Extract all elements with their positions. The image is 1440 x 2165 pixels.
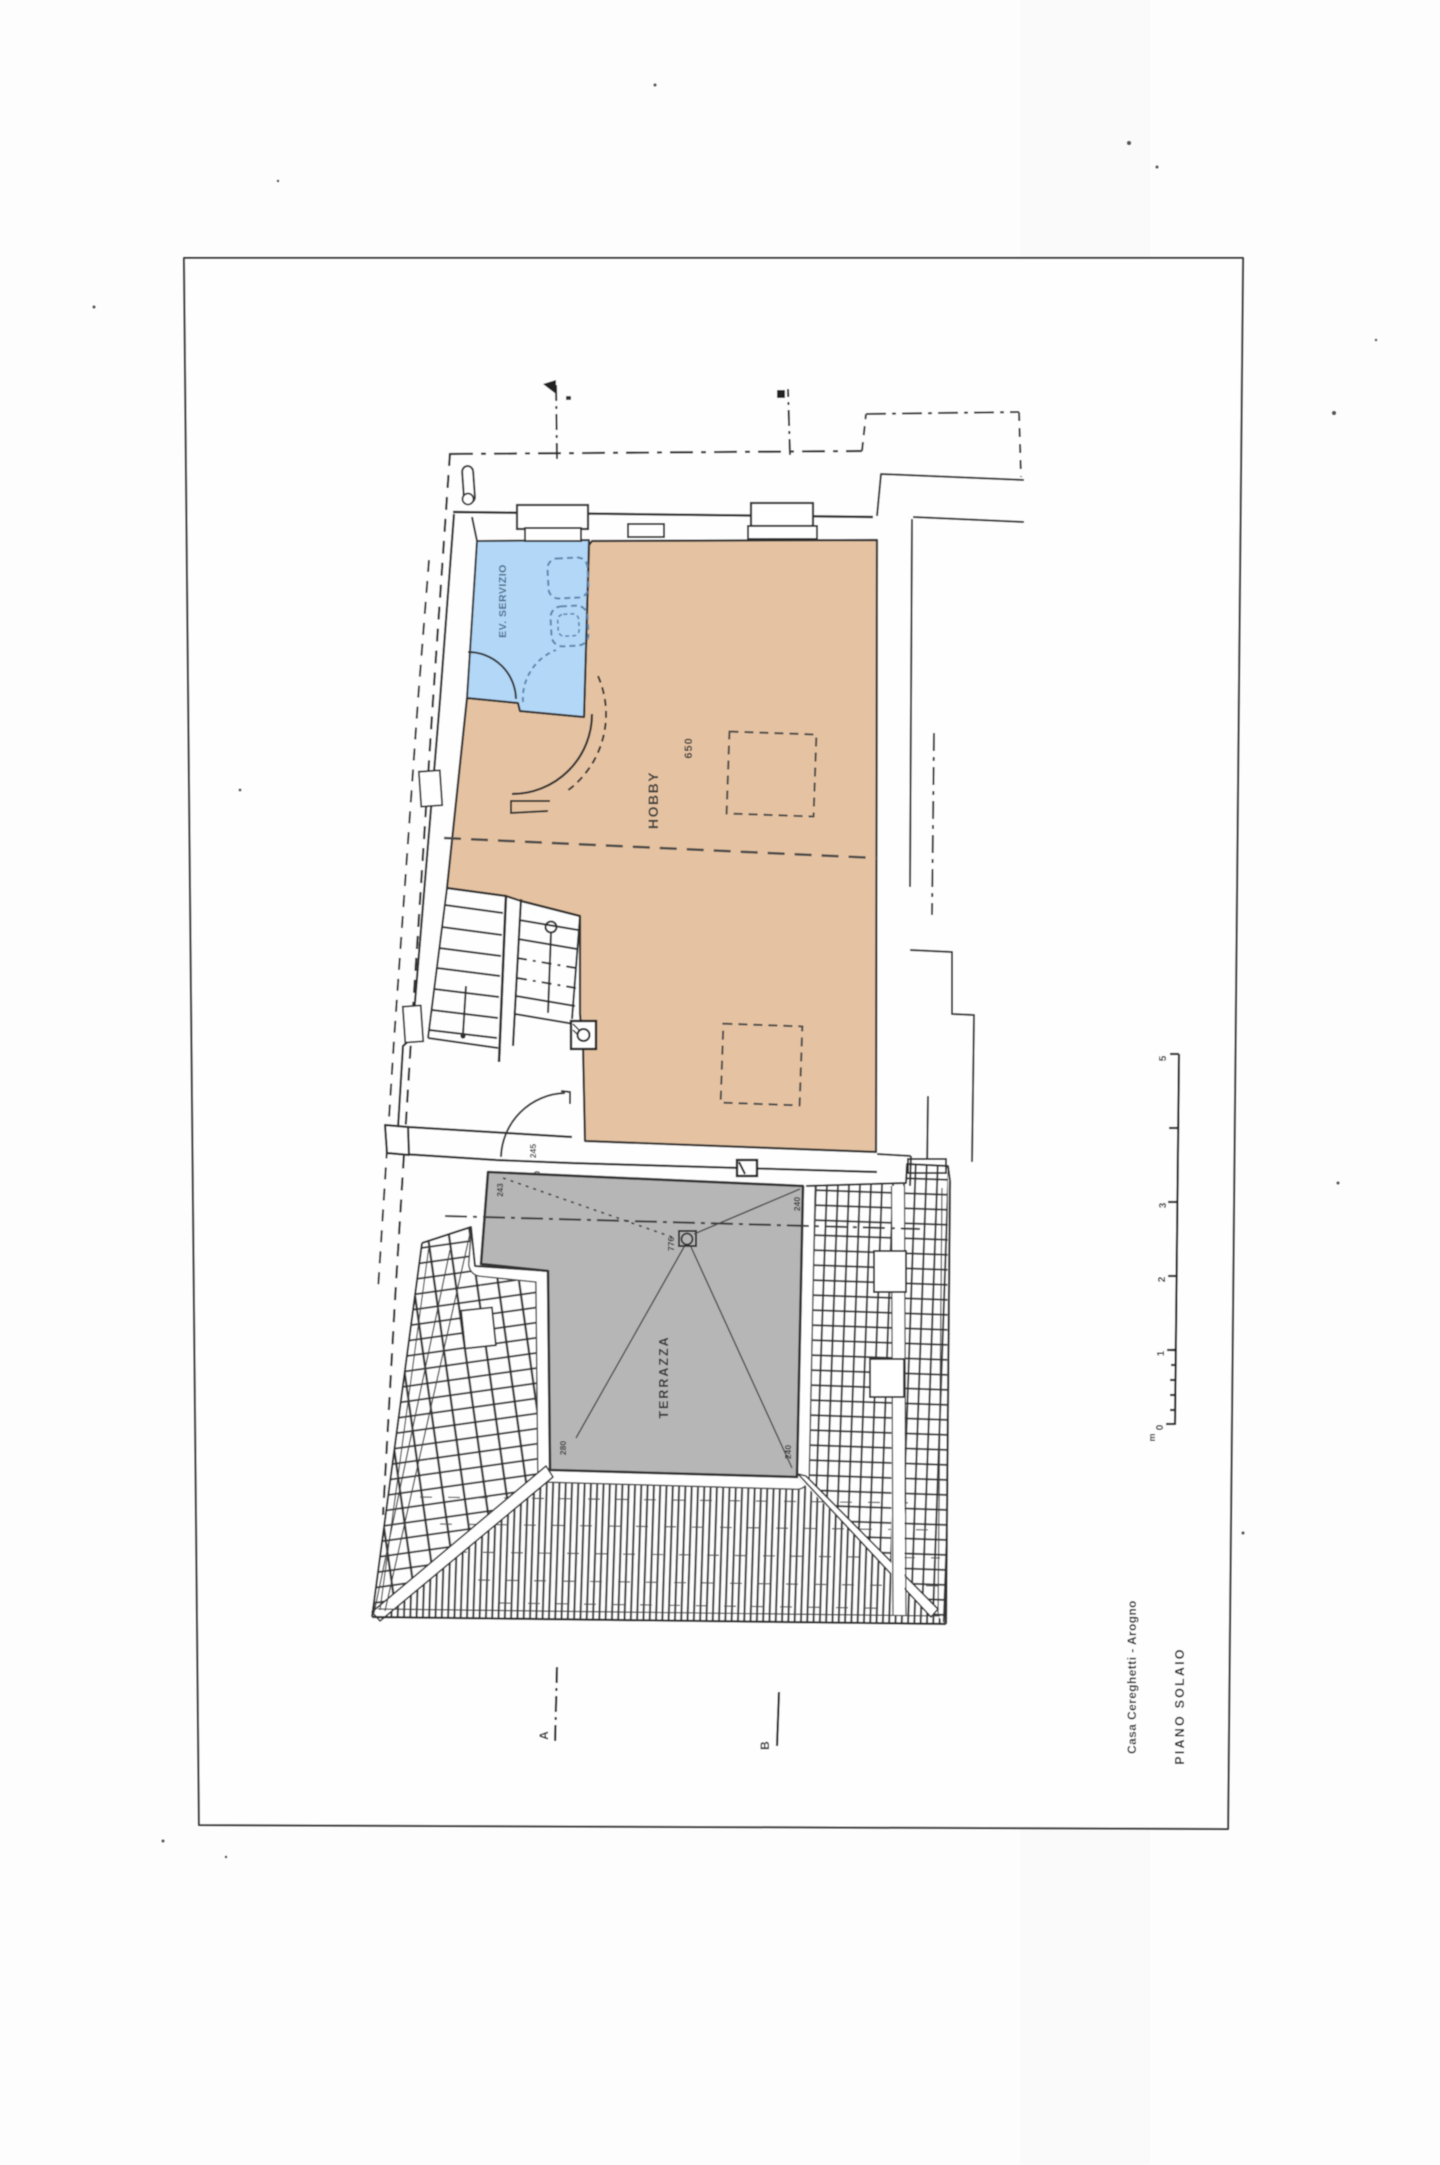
svg-text:245: 245 xyxy=(528,1144,538,1158)
svg-text:3: 3 xyxy=(1158,1202,1169,1209)
svg-text:TERRAZZA: TERRAZZA xyxy=(657,1335,671,1418)
svg-text:HOBBY: HOBBY xyxy=(645,771,661,829)
svg-text:650: 650 xyxy=(683,737,695,758)
svg-text:5: 5 xyxy=(1158,1055,1169,1062)
svg-text:243: 243 xyxy=(496,1183,505,1197)
svg-text:0: 0 xyxy=(1155,1424,1166,1431)
svg-text:PIANO SOLAIO: PIANO SOLAIO xyxy=(1173,1647,1187,1764)
svg-text:A: A xyxy=(537,1730,551,1740)
svg-text:B: B xyxy=(758,1740,772,1750)
svg-text:240: 240 xyxy=(783,1445,793,1459)
svg-text:EV. SERVIZIO: EV. SERVIZIO xyxy=(497,564,509,638)
svg-text:1: 1 xyxy=(1156,1350,1167,1357)
svg-text:240: 240 xyxy=(792,1197,802,1211)
svg-text:776: 776 xyxy=(666,1237,676,1251)
svg-text:m: m xyxy=(1147,1432,1157,1441)
svg-text:280: 280 xyxy=(558,1441,568,1455)
svg-text:2: 2 xyxy=(1157,1276,1168,1283)
svg-text:Casa Cereghetti - Arogno: Casa Cereghetti - Arogno xyxy=(1125,1600,1139,1754)
